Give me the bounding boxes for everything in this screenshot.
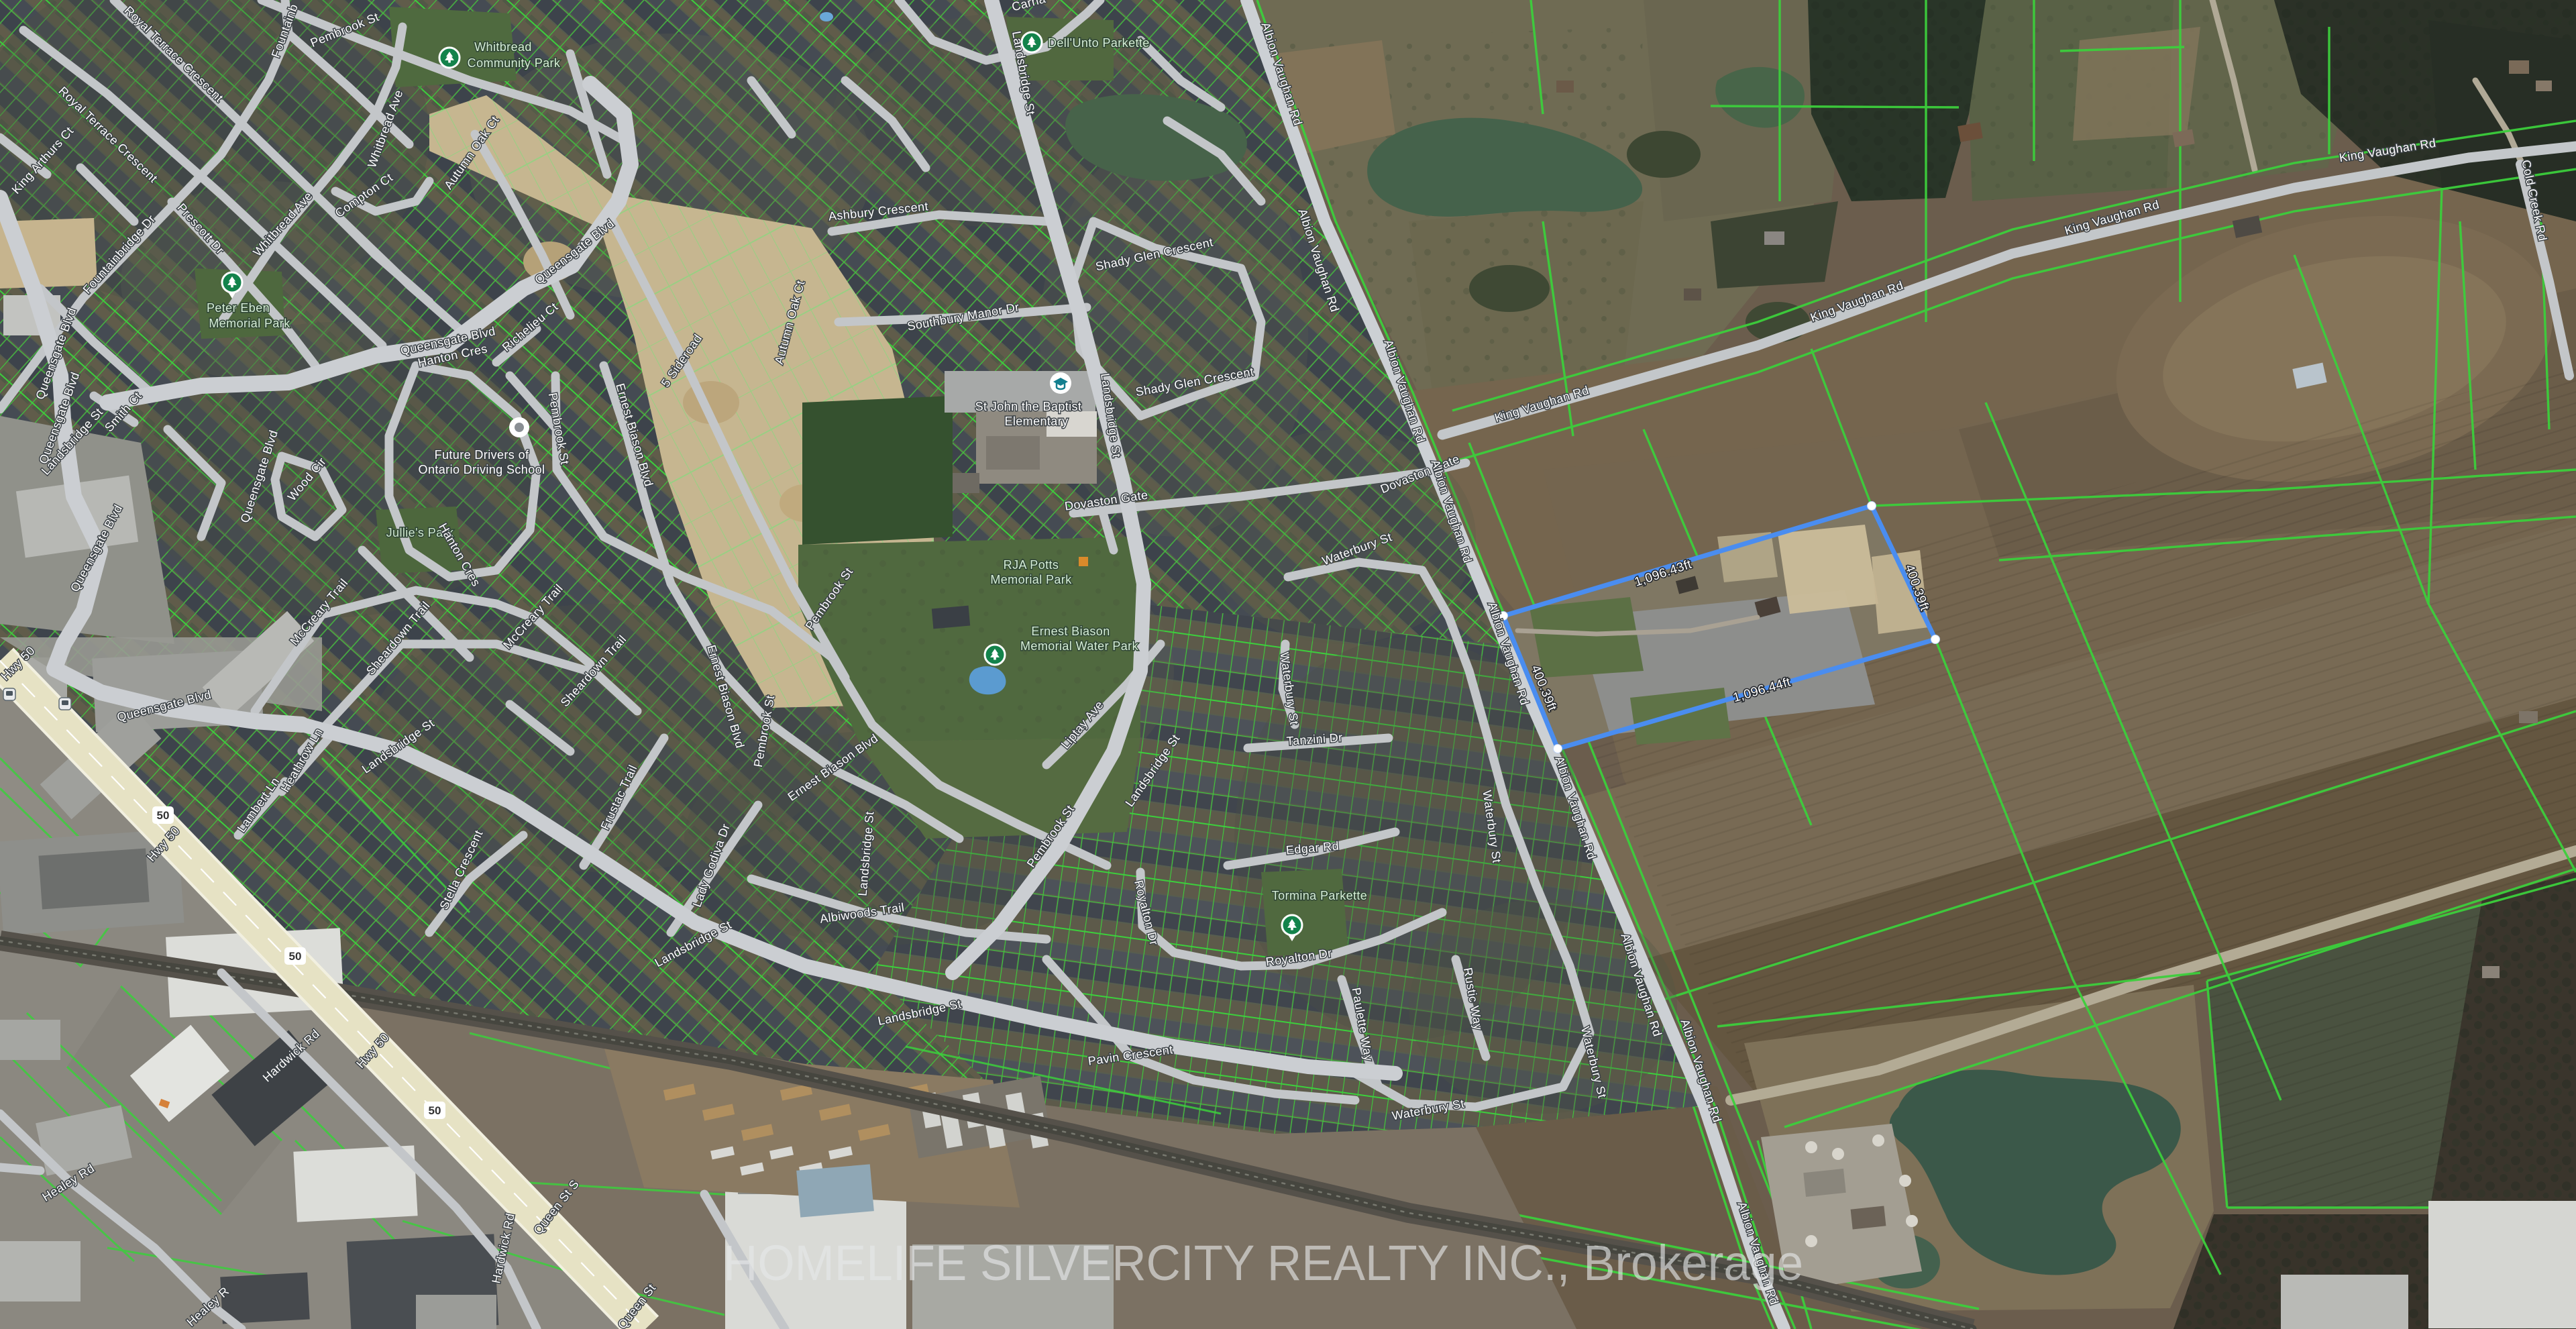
svg-text:50: 50 (429, 1104, 441, 1117)
svg-text:Future Drivers of: Future Drivers of (435, 448, 529, 462)
svg-text:Ernest Biason: Ernest Biason (1031, 625, 1110, 638)
svg-text:Memorial Park: Memorial Park (990, 573, 1072, 586)
svg-text:50: 50 (157, 809, 170, 822)
svg-text:Dell'Unto Parkette: Dell'Unto Parkette (1048, 36, 1150, 50)
svg-text:RJA Potts: RJA Potts (1004, 558, 1059, 572)
svg-text:Ontario Driving School: Ontario Driving School (419, 463, 545, 476)
svg-text:Memorial Water Park: Memorial Water Park (1020, 639, 1139, 653)
svg-text:Memorial Park: Memorial Park (209, 317, 290, 330)
svg-text:HOMELIFE SILVERCITY REALTY INC: HOMELIFE SILVERCITY REALTY INC., Brokera… (723, 1235, 1803, 1291)
svg-text:Tormina Parkette: Tormina Parkette (1272, 889, 1367, 902)
svg-text:50: 50 (289, 950, 302, 963)
svg-text:St John the Baptist: St John the Baptist (975, 400, 1082, 413)
svg-text:Community Park: Community Park (468, 56, 561, 70)
svg-text:Whitbread: Whitbread (474, 40, 532, 54)
svg-text:Peter Eben: Peter Eben (207, 301, 270, 315)
svg-text:Elementary: Elementary (1004, 415, 1068, 428)
